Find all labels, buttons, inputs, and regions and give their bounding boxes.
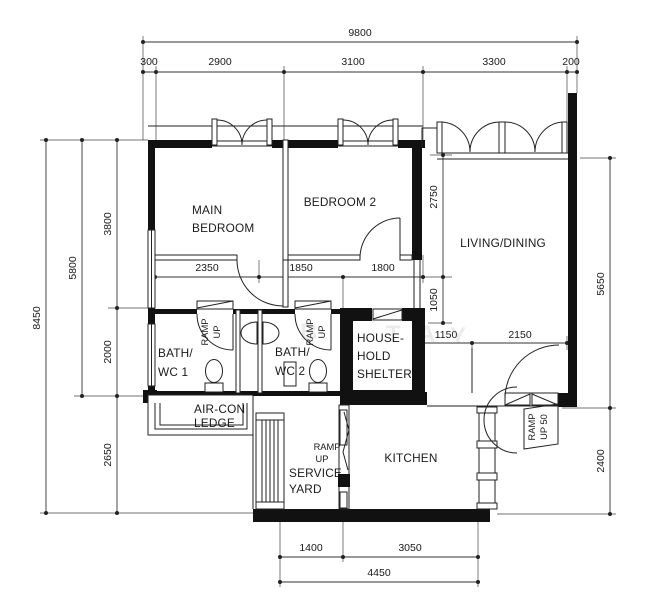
toilet-bath2: [309, 360, 327, 393]
dim-top-2900: 2900: [208, 56, 232, 68]
label-main-bedroom-2: BEDROOM: [192, 221, 254, 235]
label-living-dining: LIVING/DINING: [460, 236, 546, 250]
svg-text:Y: Y: [450, 323, 466, 350]
ramp-up-service: RAMP UP: [314, 442, 341, 464]
dim-left-8450: 8450: [31, 306, 43, 330]
bedroom2-casement-window: [338, 119, 398, 146]
dim-2350: 2350: [195, 262, 219, 274]
main-bedroom-door: [237, 260, 283, 306]
dim-5650: 5650: [595, 272, 607, 296]
floor-plan-page: 9800 300 2900 3100 3300 200 8450 5800 38…: [0, 0, 671, 600]
ramp-up-bath1: RAMP UP: [200, 319, 222, 346]
label-bedroom2: BEDROOM 2: [304, 195, 377, 209]
label-household-3: SHELTER: [357, 367, 412, 381]
dim-2750: 2750: [428, 185, 440, 209]
svg-text:UP: UP: [212, 326, 222, 339]
living-window-band: [437, 122, 568, 159]
sink-bath1: [241, 322, 257, 344]
ramp-up-50-entry: RAMP UP 50: [527, 414, 549, 441]
dim-top-200: 200: [562, 56, 580, 68]
dimension-lines: [40, 36, 616, 587]
dim-4450: 4450: [367, 567, 391, 579]
label-household-1: HOUSE-: [357, 331, 404, 345]
label-bath2-2: WC 2: [275, 364, 305, 378]
dim-top-3100: 3100: [341, 56, 365, 68]
label-service-2: YARD: [289, 482, 322, 496]
svg-text:RAMP: RAMP: [527, 414, 537, 441]
label-aircon-1: AIR-CON: [194, 402, 245, 416]
label-household-2: HOLD: [357, 349, 391, 363]
svg-text:RAMP: RAMP: [314, 442, 341, 452]
label-bath2-1: BATH/: [275, 345, 310, 359]
label-kitchen: KITCHEN: [384, 451, 437, 465]
dim-1050: 1050: [428, 288, 440, 312]
dim-total-width: 9800: [348, 27, 372, 39]
svg-text:RAMP: RAMP: [200, 319, 210, 346]
svg-text:RAMP: RAMP: [305, 319, 315, 346]
dim-left-3800: 3800: [102, 212, 114, 236]
dim-1400: 1400: [299, 542, 323, 554]
svg-text:UP: UP: [316, 454, 329, 464]
kitchen-window-band: [477, 407, 497, 509]
main-bedroom-casement-window: [212, 119, 272, 146]
dim-left-2000: 2000: [102, 340, 114, 364]
dimension-ticks: [44, 40, 612, 584]
dim-top-3300: 3300: [482, 56, 506, 68]
label-main-bedroom-1: MAIN: [192, 203, 222, 217]
dim-1850: 1850: [289, 262, 313, 274]
sink-bath2: [263, 322, 279, 344]
svg-text:UP: UP: [317, 326, 327, 339]
dim-1800: 1800: [371, 262, 395, 274]
svg-text:UP 50: UP 50: [539, 414, 549, 440]
bedroom2-door: [360, 218, 400, 258]
service-yard-louvre: [256, 413, 284, 509]
dim-left-5800: 5800: [67, 256, 79, 280]
dim-left-2650: 2650: [102, 443, 114, 467]
dim-3050: 3050: [398, 542, 422, 554]
label-bath1-2: WC 1: [158, 365, 188, 379]
dim-top-300: 300: [140, 56, 158, 68]
label-aircon-2: LEDGE: [194, 416, 235, 430]
toilet-bath1: [205, 360, 223, 393]
label-service-1: SERVICE: [289, 466, 342, 480]
floor-plan-drawing: 9800 300 2900 3100 3300 200 8450 5800 38…: [0, 0, 671, 600]
dim-2400: 2400: [595, 449, 607, 473]
dim-2150: 2150: [508, 329, 532, 341]
label-bath1-1: BATH/: [158, 346, 193, 360]
